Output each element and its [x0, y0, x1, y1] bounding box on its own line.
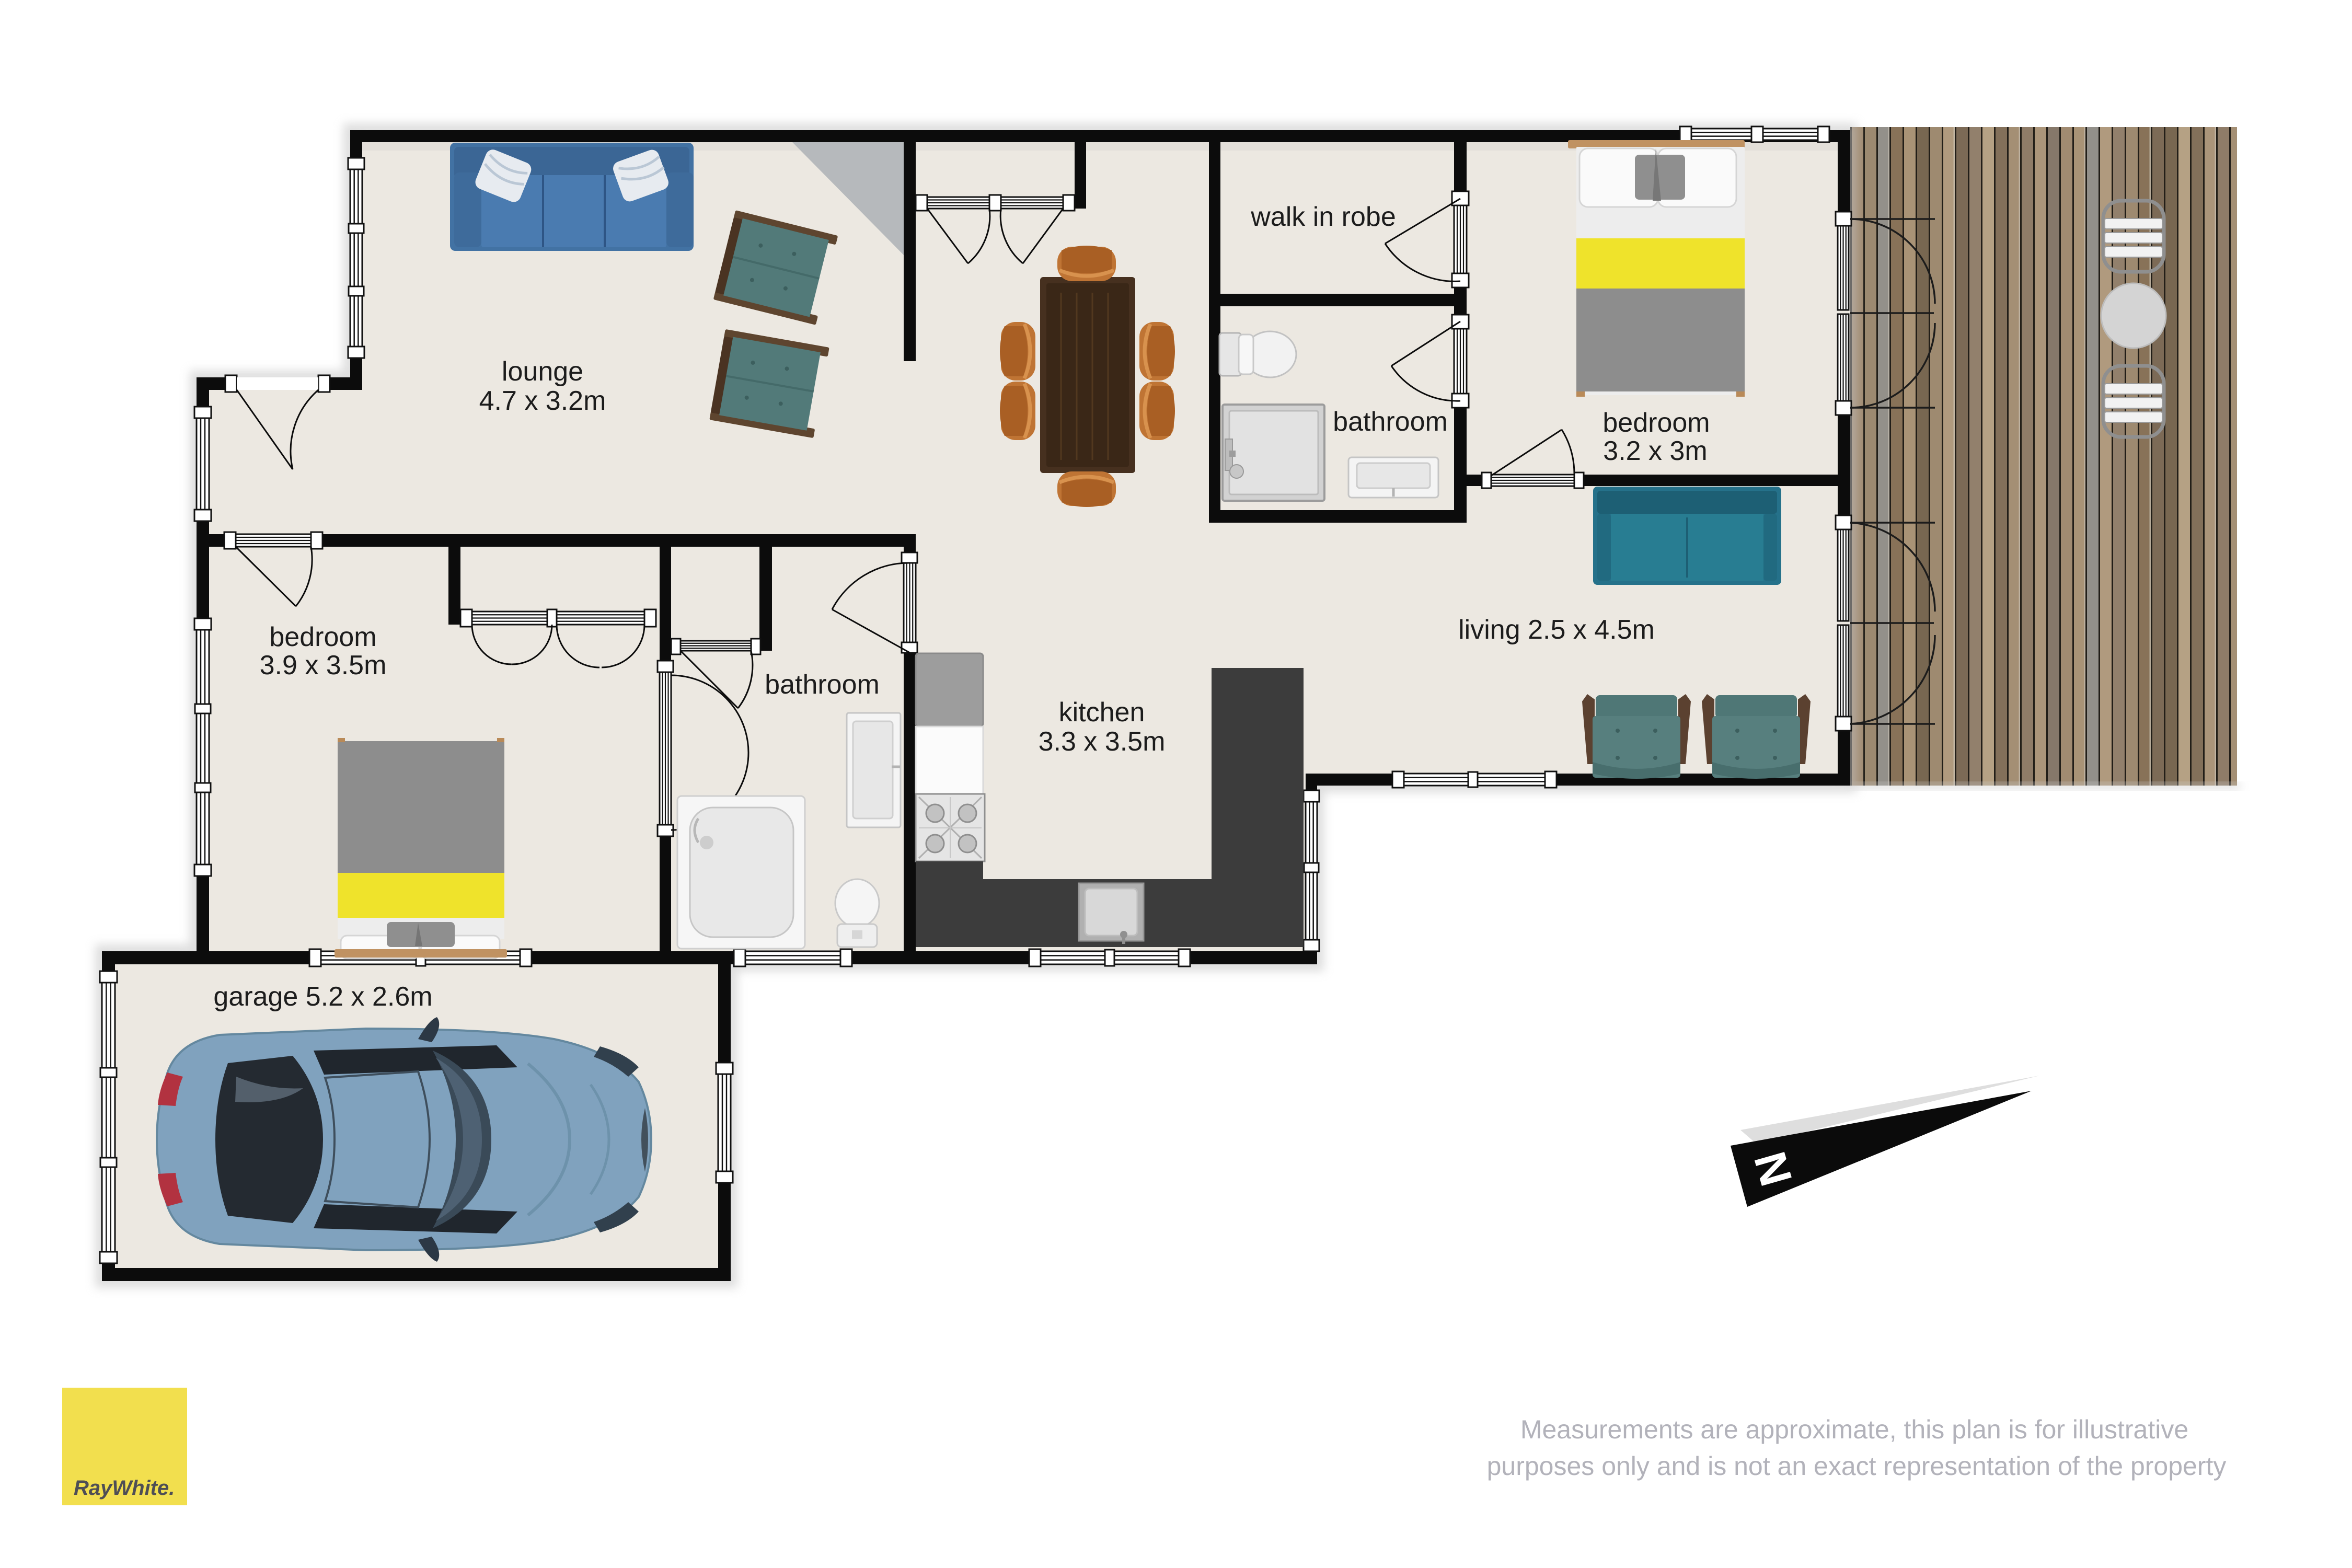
svg-text:garage 5.2 x 2.6m: garage 5.2 x 2.6m	[213, 982, 432, 1012]
svg-text:Measurements are approximate,: Measurements are approximate, this plan …	[1520, 1415, 2188, 1444]
svg-text:kitchen: kitchen	[1059, 697, 1145, 728]
svg-text:purposes only and is not an ex: purposes only and is not an exact repres…	[1487, 1451, 2227, 1481]
svg-text:lounge: lounge	[502, 356, 583, 387]
svg-text:3.3 x 3.5m: 3.3 x 3.5m	[1039, 727, 1166, 757]
svg-text:bedroom: bedroom	[1602, 408, 1710, 438]
svg-text:4.7 x 3.2m: 4.7 x 3.2m	[479, 386, 606, 416]
svg-text:living 2.5 x 4.5m: living 2.5 x 4.5m	[1458, 615, 1655, 645]
svg-text:3.9 x 3.5m: 3.9 x 3.5m	[260, 650, 387, 681]
svg-text:walk in robe: walk in robe	[1250, 202, 1396, 232]
svg-text:RayWhite.: RayWhite.	[74, 1477, 175, 1500]
svg-text:bathroom: bathroom	[765, 670, 880, 700]
svg-text:3.2 x 3m: 3.2 x 3m	[1603, 436, 1707, 466]
svg-text:bathroom: bathroom	[1333, 407, 1448, 437]
svg-text:bedroom: bedroom	[269, 622, 376, 652]
